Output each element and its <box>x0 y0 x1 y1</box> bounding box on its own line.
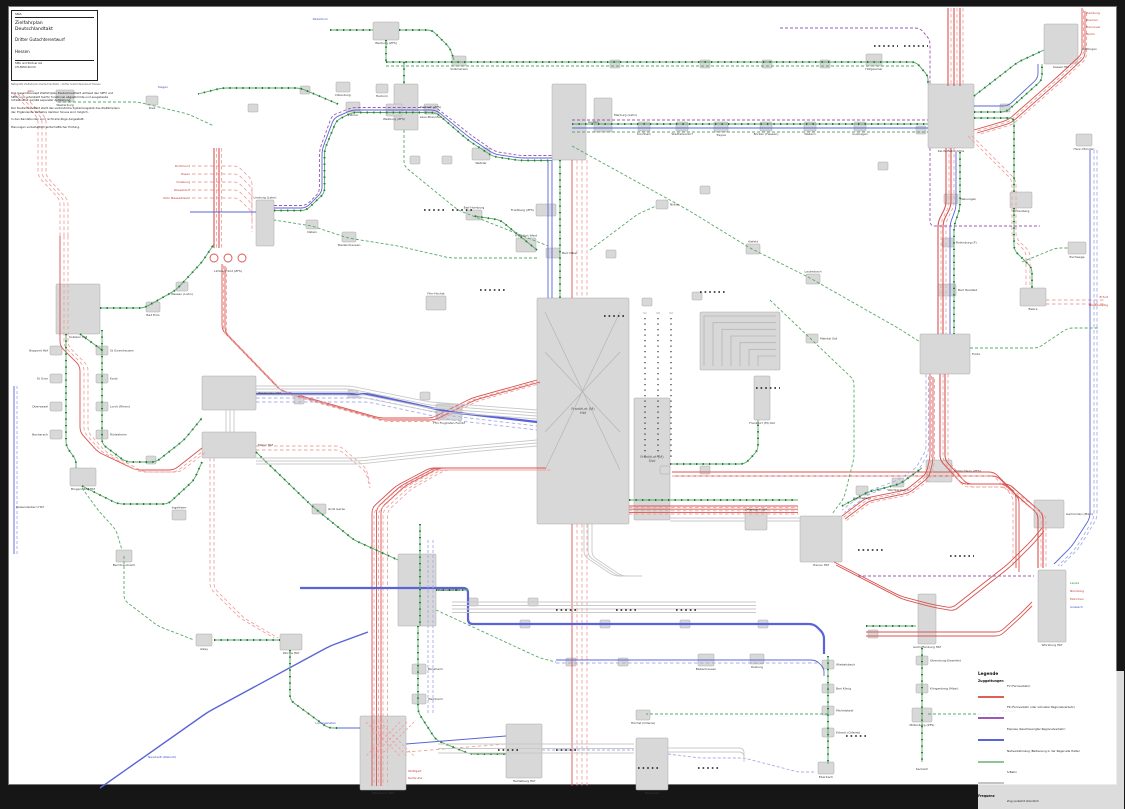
info-paragraph: Der Deutschlandtakt stellt das verbindli… <box>11 107 121 114</box>
legend-swatch-line <box>978 751 1004 770</box>
legend-heading: Legende <box>978 671 1124 676</box>
legend-swatch-line <box>978 686 1004 705</box>
legend: Legende ZuggattungenFV (Fernverkehr)FR (… <box>978 671 1124 809</box>
station-label: Neckarelz <box>645 791 660 795</box>
netgraph-page: Frankfurt (M)HbfFrankfurt (M)SüdFrankfur… <box>0 0 1125 809</box>
legend-swatch-line <box>978 707 1004 726</box>
legend-item: Express (beschleunigter Regionalverkehr) <box>978 728 1124 748</box>
legend-item-label: Zug verkehrt stündlich <box>1007 800 1039 803</box>
diagram-canvas <box>8 6 1117 785</box>
info-paragraph: In den Randstunden sind nicht alle Züge … <box>11 118 121 122</box>
legend-item: Nahverkehrszug (Bedienung in der Regel a… <box>978 750 1124 770</box>
page-title: Zielfahrplan Deutschlandtakt <box>15 21 94 32</box>
title-company: SMA und Partner AG CH-8050 Zürich <box>15 60 94 69</box>
title-corner: SMA <box>15 12 94 18</box>
title-region: Hessen <box>15 49 94 54</box>
info-paragraph: Planungen vorbehaltlich wirtschaftlicher… <box>11 126 121 130</box>
title-subtitle: Dritter Gutachterentwurf <box>15 37 94 42</box>
legend-swatch-line <box>978 772 1004 791</box>
legend-item-label: FV (Fernverkehr) <box>1007 685 1030 688</box>
info-paragraph: Das Gesamtkonzept Zielfahrplan Deutschla… <box>11 92 121 103</box>
title-caption: Netzgrafik Zielfahrplan Deutschlandtakt … <box>11 83 181 86</box>
legend-item-label: Express (beschleunigter Regionalverkehr) <box>1007 728 1065 731</box>
legend-item: Zug verkehrt stündlich <box>978 800 1124 809</box>
legend-item: FV (Fernverkehr) <box>978 685 1124 705</box>
legend-item: S-Bahn <box>978 771 1124 791</box>
legend-item-label: FR (Fernverkehr oder schneller Regionalv… <box>1007 706 1075 709</box>
legend-item-label: Nahverkehrszug (Bedienung in der Regel a… <box>1007 750 1080 753</box>
title-block: SMA Zielfahrplan Deutschlandtakt Dritter… <box>11 10 98 81</box>
info-paragraphs: Das Gesamtkonzept Zielfahrplan Deutschla… <box>11 92 121 133</box>
station-label: Mannheim Hbf <box>372 791 395 795</box>
legend-swatch-line <box>978 729 1004 748</box>
legend-swatch-line <box>978 801 1004 809</box>
legend-item: FR (Fernverkehr oder schneller Regionalv… <box>978 706 1124 726</box>
legend-section-heading: Zuggattungen <box>978 679 1124 683</box>
legend-item-label: S-Bahn <box>1007 771 1017 774</box>
legend-section-heading: Frequenz <box>978 794 1124 798</box>
